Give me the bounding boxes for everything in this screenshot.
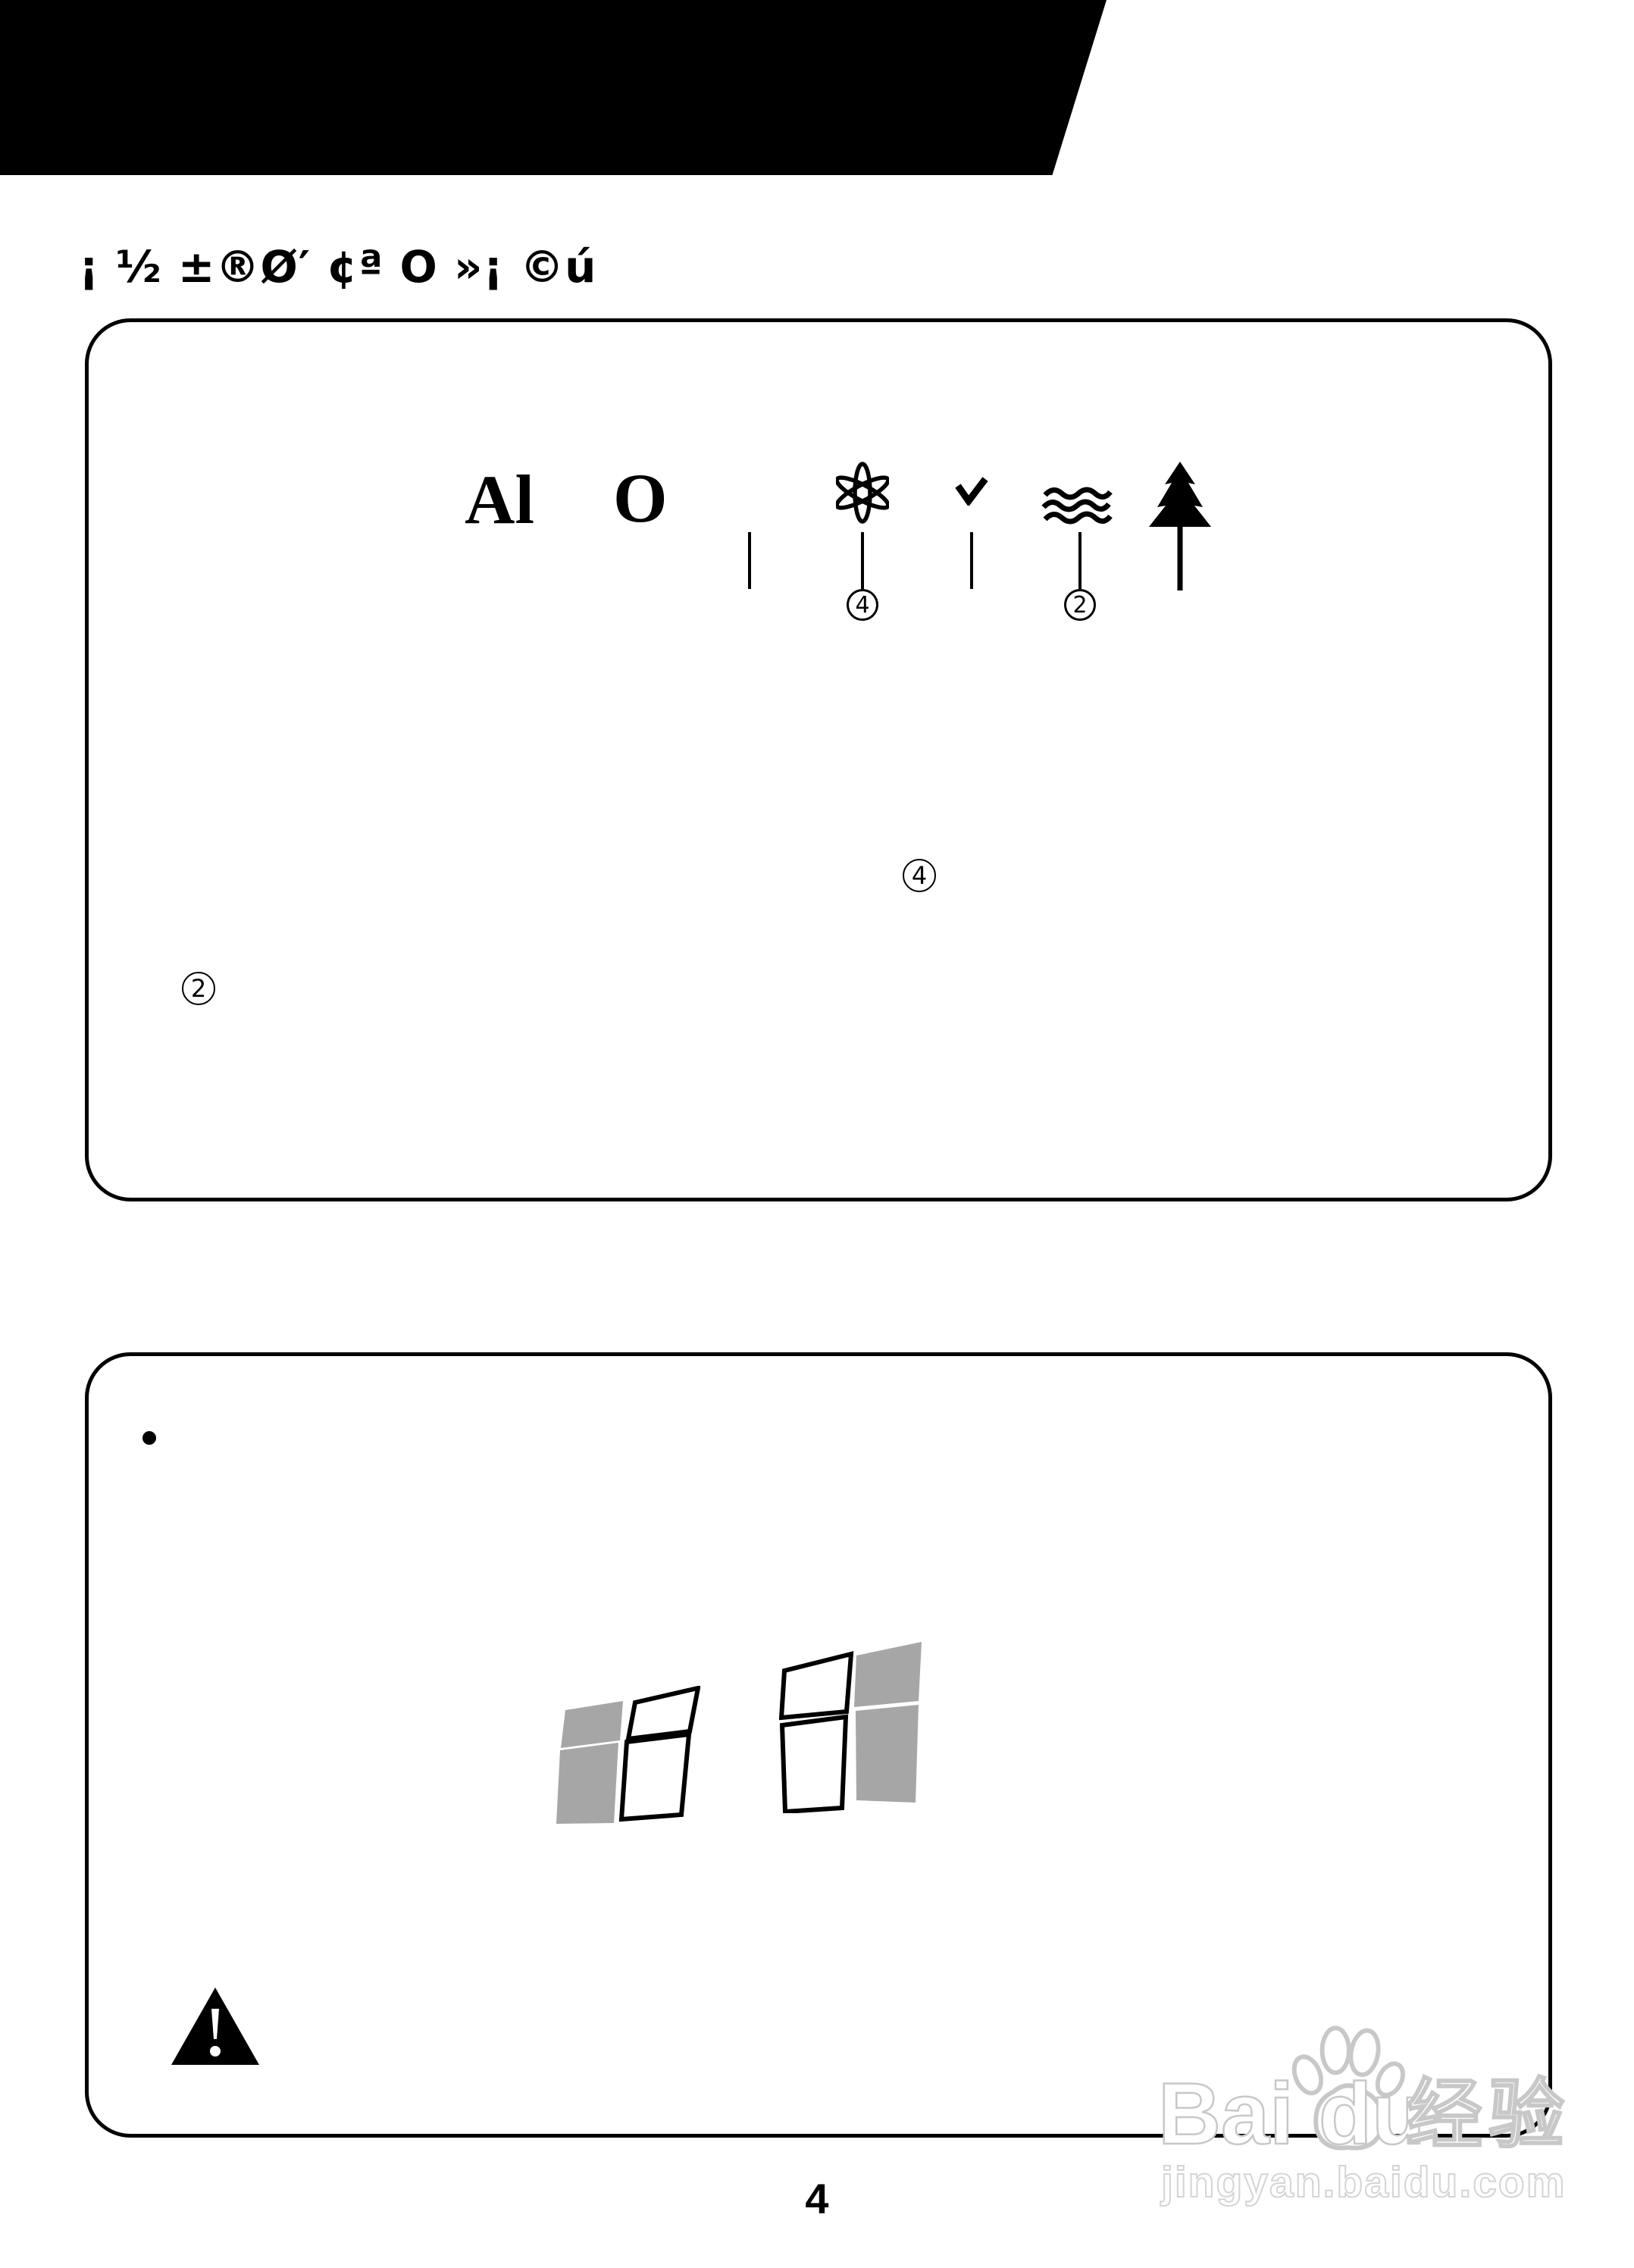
panel-installation-note (85, 1352, 1552, 2138)
o-symbol: O (613, 463, 668, 533)
bullet-point (142, 1431, 156, 1445)
callout-line (748, 532, 751, 589)
panel-remote-display: Al O 4 2 4 (85, 318, 1552, 1201)
warning-triangle-icon (168, 1984, 262, 2069)
callout-line (1078, 532, 1082, 589)
callout-line (861, 532, 864, 589)
watermark-baidu-text: Bai (1158, 2071, 1294, 2158)
al-symbol: Al (465, 465, 534, 534)
airflow-waves-icon (1041, 486, 1113, 528)
anion-atom-icon (836, 460, 889, 525)
watermark-jingyan-cjk: 经验 (1407, 2077, 1570, 2153)
check-icon (954, 475, 989, 506)
watermark-url: jingyan.baidu.com (1161, 2157, 1566, 2207)
pine-tree-icon (1148, 460, 1212, 590)
callout-number-4-middle: 4 (903, 859, 936, 892)
top-banner (0, 0, 1107, 175)
window-logo-right (779, 1640, 925, 1813)
callout-number-4: 4 (847, 589, 878, 621)
document-page: ¡ ½ ±®Ø′ ¢ª O »¡ ©ú Al O (0, 0, 1634, 2268)
callout-line (970, 532, 973, 589)
callout-number-2: 2 (1064, 589, 1096, 621)
page-title: ¡ ½ ±®Ø′ ¢ª O »¡ ©ú (79, 241, 596, 293)
callout-number-2-left: 2 (182, 972, 215, 1005)
page-number: 4 (787, 2174, 847, 2223)
window-logo-left (556, 1686, 700, 1826)
